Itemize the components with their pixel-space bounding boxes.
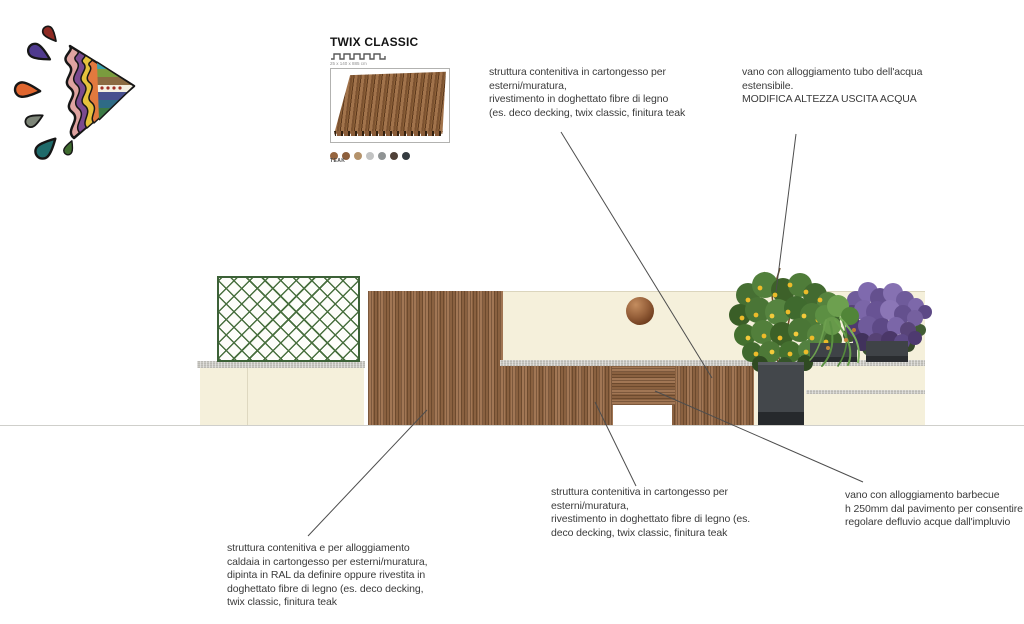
tall-wood-slat-panel [368,291,503,425]
right-cabinet-drawer-strip [806,390,925,394]
copper-sphere-spout [626,297,654,325]
finish-color-dot [390,152,398,160]
swatch-dimensions: 25 x 140 x 885 cm [330,61,454,66]
logo-triangle [65,46,136,138]
decking-board-ends [334,131,443,136]
upper-wall [503,291,925,362]
annotation-bottom-center: struttura contenitiva in cartongesso per… [551,486,750,540]
decking-photo-illustration [333,71,447,140]
right-cabinet [754,366,925,425]
material-swatch-card: TWIX CLASSIC 25 x 140 x 885 cm TEAK [330,35,454,164]
finish-color-dot [366,152,374,160]
finish-color-dot [378,152,386,160]
floor-niche-opening [613,405,672,426]
leader-top-right [776,134,796,292]
swatch-photo [330,68,450,143]
annotation-bottom-right: vano con alloggiamento barbecue h 250mm … [845,489,1023,530]
studio-logo [12,10,138,160]
finish-color-dot [402,152,410,160]
annotation-top-right: vano con alloggiamento tubo dell'acqua e… [742,66,922,107]
annotation-top-center: struttura contenitiva in cartongesso per… [489,66,685,120]
left-cabinet [200,368,364,425]
swatch-title: TWIX CLASSIC [330,35,454,49]
left-countertop [197,361,365,368]
floor-line [0,425,1024,426]
decking-profile-icon [330,51,386,60]
design-board: TWIX CLASSIC 25 x 140 x 885 cm TEAK [0,0,1024,624]
finish-color-dot [354,152,362,160]
annotation-bottom-left: struttura contenitiva e per alloggiament… [227,542,427,610]
finish-color-dots [330,147,454,156]
leader-bottom-left [308,410,427,536]
green-trellis [217,276,360,362]
cabinet-seam [247,368,248,425]
logo-splash-drops [14,24,75,160]
barbecue-vano-panel [612,366,675,405]
